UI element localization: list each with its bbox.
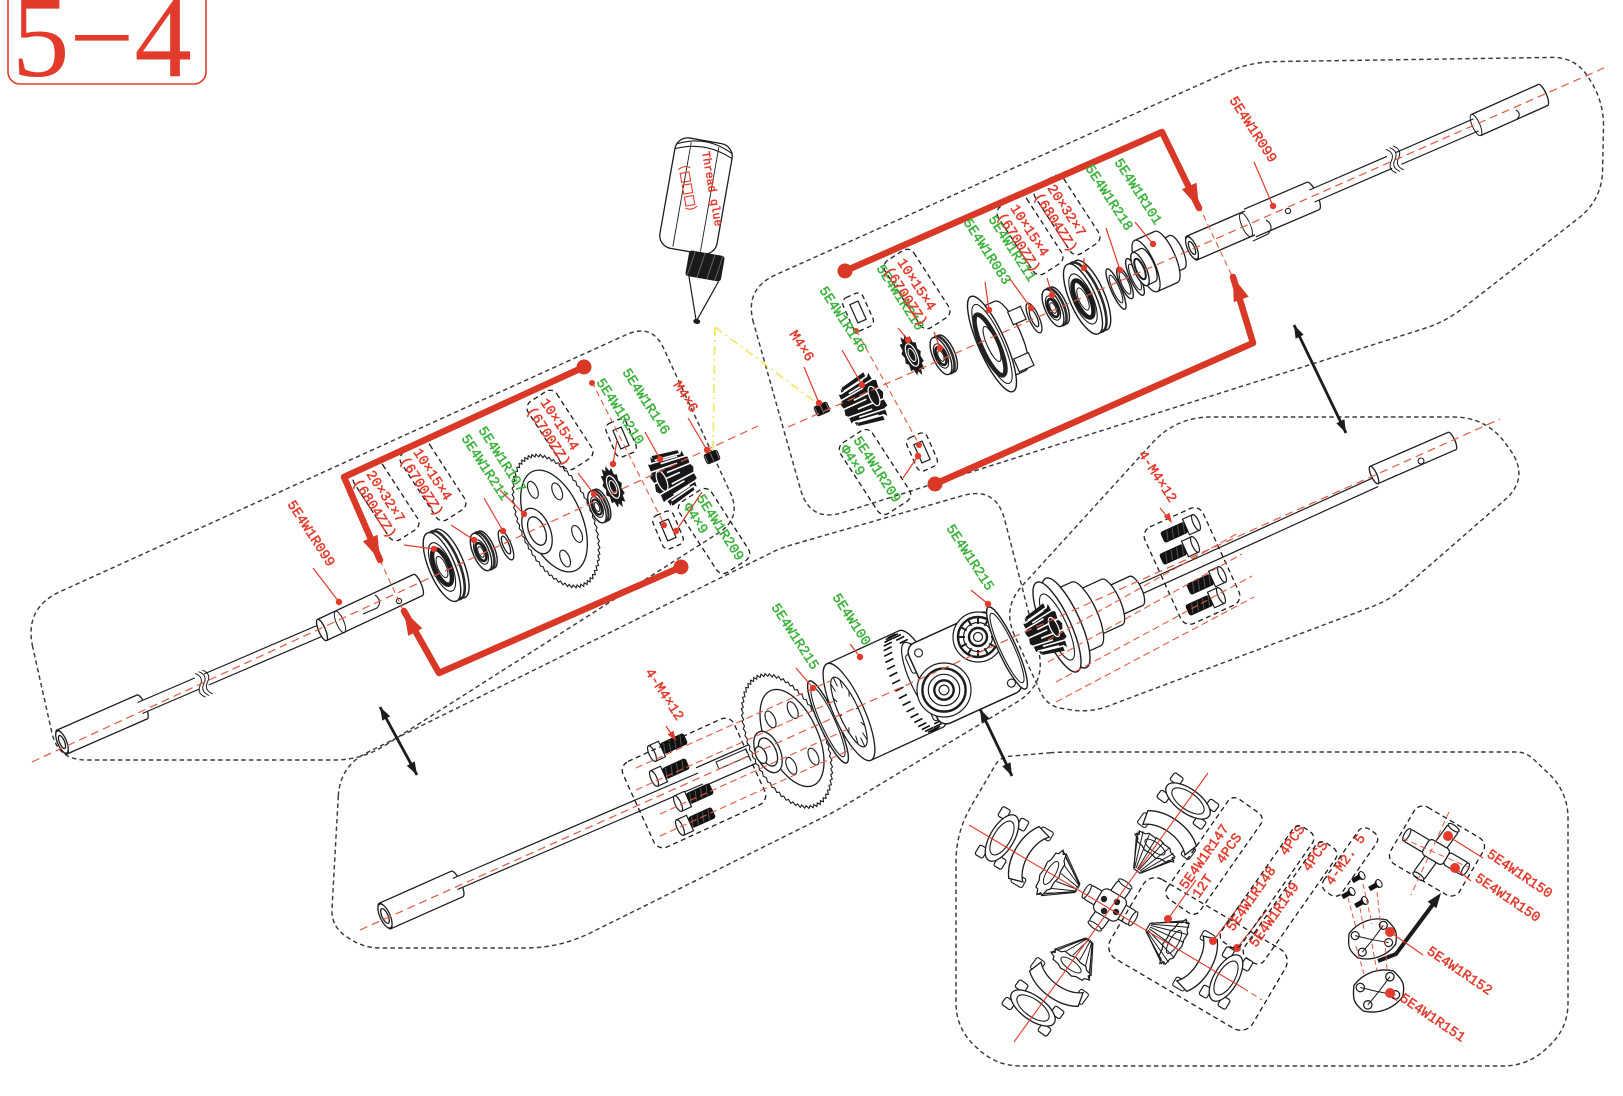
svg-text:5−4: 5−4 bbox=[12, 0, 192, 101]
